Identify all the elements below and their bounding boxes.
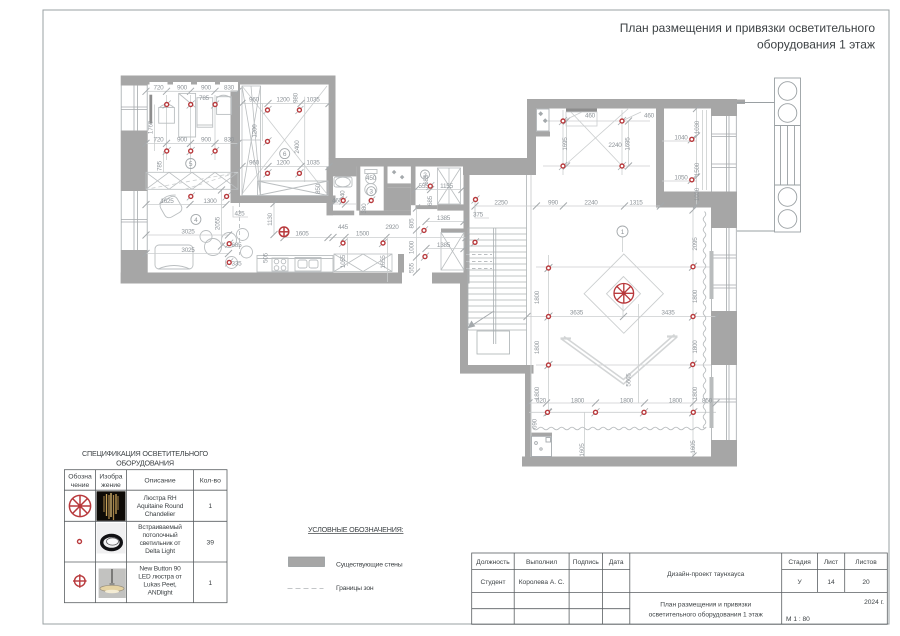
svg-text:1605: 1605 [295, 231, 309, 238]
svg-text:1155: 1155 [440, 183, 453, 190]
svg-text:Студент: Студент [480, 579, 505, 586]
svg-text:620: 620 [536, 398, 547, 405]
svg-text:1385: 1385 [437, 215, 451, 222]
svg-text:900: 900 [177, 137, 188, 144]
svg-text:1: 1 [208, 580, 212, 587]
svg-text:6: 6 [283, 151, 287, 158]
svg-text:785: 785 [199, 95, 210, 102]
svg-text:М 1 : 80: М 1 : 80 [786, 616, 810, 623]
svg-text:3025: 3025 [181, 229, 195, 236]
svg-text:1800: 1800 [692, 386, 699, 400]
svg-text:685: 685 [423, 174, 430, 185]
svg-text:Lukas Peet,: Lukas Peet, [143, 582, 176, 589]
svg-text:УСЛОВНЫЕ ОБОЗНАЧЕНИЯ:: УСЛОВНЫЕ ОБОЗНАЧЕНИЯ: [308, 525, 404, 534]
svg-text:Delta Light: Delta Light [145, 548, 175, 555]
svg-text:14: 14 [827, 579, 835, 586]
svg-text:2024 г.: 2024 г. [864, 599, 884, 606]
svg-text:чение: чение [71, 482, 90, 489]
svg-text:осветительного оборудования 1: осветительного оборудования 1 этаж [649, 611, 764, 619]
svg-text:1760: 1760 [148, 120, 155, 134]
svg-text:Обозна: Обозна [68, 473, 92, 481]
svg-text:335: 335 [232, 261, 243, 268]
svg-text:Лист: Лист [824, 559, 838, 566]
svg-text:375: 375 [473, 212, 484, 219]
svg-text:720: 720 [154, 85, 165, 92]
svg-text:1000: 1000 [409, 240, 416, 254]
svg-text:785: 785 [157, 160, 164, 171]
svg-text:1800: 1800 [692, 289, 699, 303]
svg-text:Люстра RH: Люстра RH [144, 495, 177, 502]
svg-text:Королева А. С.: Королева А. С. [519, 579, 565, 586]
svg-text:3025: 3025 [181, 247, 195, 254]
svg-text:555: 555 [409, 262, 416, 273]
svg-text:План размещения и привязки осв: План размещения и привязки осветительног… [620, 21, 876, 35]
svg-text:20: 20 [862, 579, 870, 586]
svg-text:3435: 3435 [661, 310, 675, 317]
svg-text:1800: 1800 [620, 398, 634, 405]
svg-text:Листов: Листов [855, 559, 877, 566]
svg-text:3: 3 [369, 189, 373, 196]
svg-text:445: 445 [338, 224, 349, 231]
svg-text:жение: жение [101, 482, 121, 489]
svg-text:1695: 1695 [562, 137, 569, 151]
svg-text:1800: 1800 [534, 340, 541, 354]
svg-text:Встраиваемый: Встраиваемый [138, 523, 182, 531]
svg-text:460: 460 [644, 113, 655, 120]
svg-text:1040: 1040 [674, 135, 688, 142]
svg-text:Выполнил: Выполнил [526, 559, 557, 566]
svg-text:1200: 1200 [252, 124, 259, 138]
svg-text:805: 805 [409, 218, 416, 229]
svg-text:830: 830 [224, 85, 235, 92]
svg-text:СПЕЦИФИКАЦИЯ ОСВЕТИТЕЛЬНОГО: СПЕЦИФИКАЦИЯ ОСВЕТИТЕЛЬНОГО [82, 449, 209, 458]
svg-text:690: 690 [532, 418, 539, 429]
svg-text:460: 460 [585, 113, 596, 120]
svg-text:990: 990 [548, 200, 559, 207]
svg-text:оборудования 1 этаж: оборудования 1 этаж [757, 38, 875, 52]
svg-text:380: 380 [361, 203, 368, 214]
svg-text:1: 1 [208, 503, 212, 510]
svg-text:1800: 1800 [571, 398, 585, 405]
svg-text:1605: 1605 [690, 440, 697, 454]
svg-text:Стадия: Стадия [788, 559, 811, 566]
svg-text:5665: 5665 [626, 373, 633, 387]
svg-text:830: 830 [224, 137, 235, 144]
svg-text:1500: 1500 [694, 162, 701, 176]
svg-text:1800: 1800 [669, 398, 683, 405]
svg-text:39: 39 [207, 540, 215, 547]
svg-text:1030: 1030 [694, 187, 701, 201]
svg-text:Должность: Должность [476, 559, 510, 566]
svg-text:450: 450 [366, 175, 377, 182]
svg-text:2240: 2240 [608, 142, 622, 149]
svg-text:1035: 1035 [306, 160, 320, 167]
svg-text:3635: 3635 [570, 310, 584, 317]
svg-text:425: 425 [235, 211, 246, 218]
svg-text:4: 4 [194, 217, 198, 224]
svg-text:LED люстра от: LED люстра от [138, 574, 182, 581]
svg-text:900: 900 [201, 85, 212, 92]
svg-text:1385: 1385 [437, 242, 451, 249]
svg-text:Описание: Описание [144, 478, 175, 485]
svg-text:1625: 1625 [160, 198, 174, 205]
svg-text:685: 685 [232, 242, 243, 249]
svg-text:Изобра: Изобра [99, 473, 122, 481]
svg-text:720: 720 [154, 137, 165, 144]
svg-text:685: 685 [427, 195, 434, 206]
svg-text:1200: 1200 [276, 97, 290, 104]
svg-text:Границы зон: Границы зон [336, 585, 374, 592]
svg-text:850: 850 [702, 398, 713, 405]
svg-text:Дизайн-проект таунхауса: Дизайн-проект таунхауса [667, 570, 745, 578]
svg-text:505: 505 [263, 252, 270, 263]
svg-text:2240: 2240 [584, 200, 598, 207]
svg-text:2095: 2095 [692, 237, 699, 251]
svg-text:Chandelier: Chandelier [145, 511, 176, 518]
svg-text:2250: 2250 [494, 200, 508, 207]
svg-text:1695: 1695 [625, 137, 632, 151]
svg-text:1200: 1200 [276, 160, 290, 167]
svg-text:1800: 1800 [534, 290, 541, 304]
svg-text:New Button 90: New Button 90 [139, 566, 181, 573]
svg-text:1050: 1050 [674, 175, 688, 182]
svg-text:1800: 1800 [692, 340, 699, 354]
svg-text:850: 850 [315, 183, 322, 194]
svg-text:1055: 1055 [340, 254, 347, 268]
svg-text:Существующие стены: Существующие стены [336, 562, 403, 569]
svg-text:2920: 2920 [385, 224, 399, 231]
svg-text:900: 900 [177, 85, 188, 92]
svg-text:План размещения и привязки: План размещения и привязки [660, 602, 751, 609]
svg-text:5: 5 [189, 161, 193, 168]
svg-text:Дата: Дата [609, 559, 624, 566]
svg-text:1500: 1500 [356, 231, 370, 238]
svg-text:2055: 2055 [215, 216, 222, 230]
svg-text:1130: 1130 [267, 212, 274, 225]
svg-text:1605: 1605 [579, 443, 586, 457]
svg-text:2400: 2400 [294, 140, 301, 154]
svg-text:потолочный: потолочный [142, 531, 177, 539]
svg-text:900: 900 [201, 137, 212, 144]
svg-text:светильник от: светильник от [140, 540, 181, 547]
svg-text:1300: 1300 [203, 198, 217, 205]
svg-text:Подпись: Подпись [573, 559, 600, 566]
svg-text:Кол-во: Кол-во [200, 478, 221, 485]
svg-text:ANDlight: ANDlight [148, 590, 173, 597]
svg-text:1035: 1035 [306, 97, 320, 104]
svg-text:1030: 1030 [694, 120, 701, 134]
svg-text:Aquitaine Round: Aquitaine Round [137, 503, 184, 510]
svg-text:980: 980 [293, 92, 300, 103]
svg-text:1315: 1315 [629, 200, 643, 207]
svg-text:960: 960 [249, 97, 260, 104]
svg-text:960: 960 [249, 160, 260, 167]
svg-text:ОБОРУДОВАНИЯ: ОБОРУДОВАНИЯ [116, 459, 174, 468]
svg-text:1: 1 [621, 229, 625, 236]
svg-text:1655: 1655 [380, 255, 387, 269]
